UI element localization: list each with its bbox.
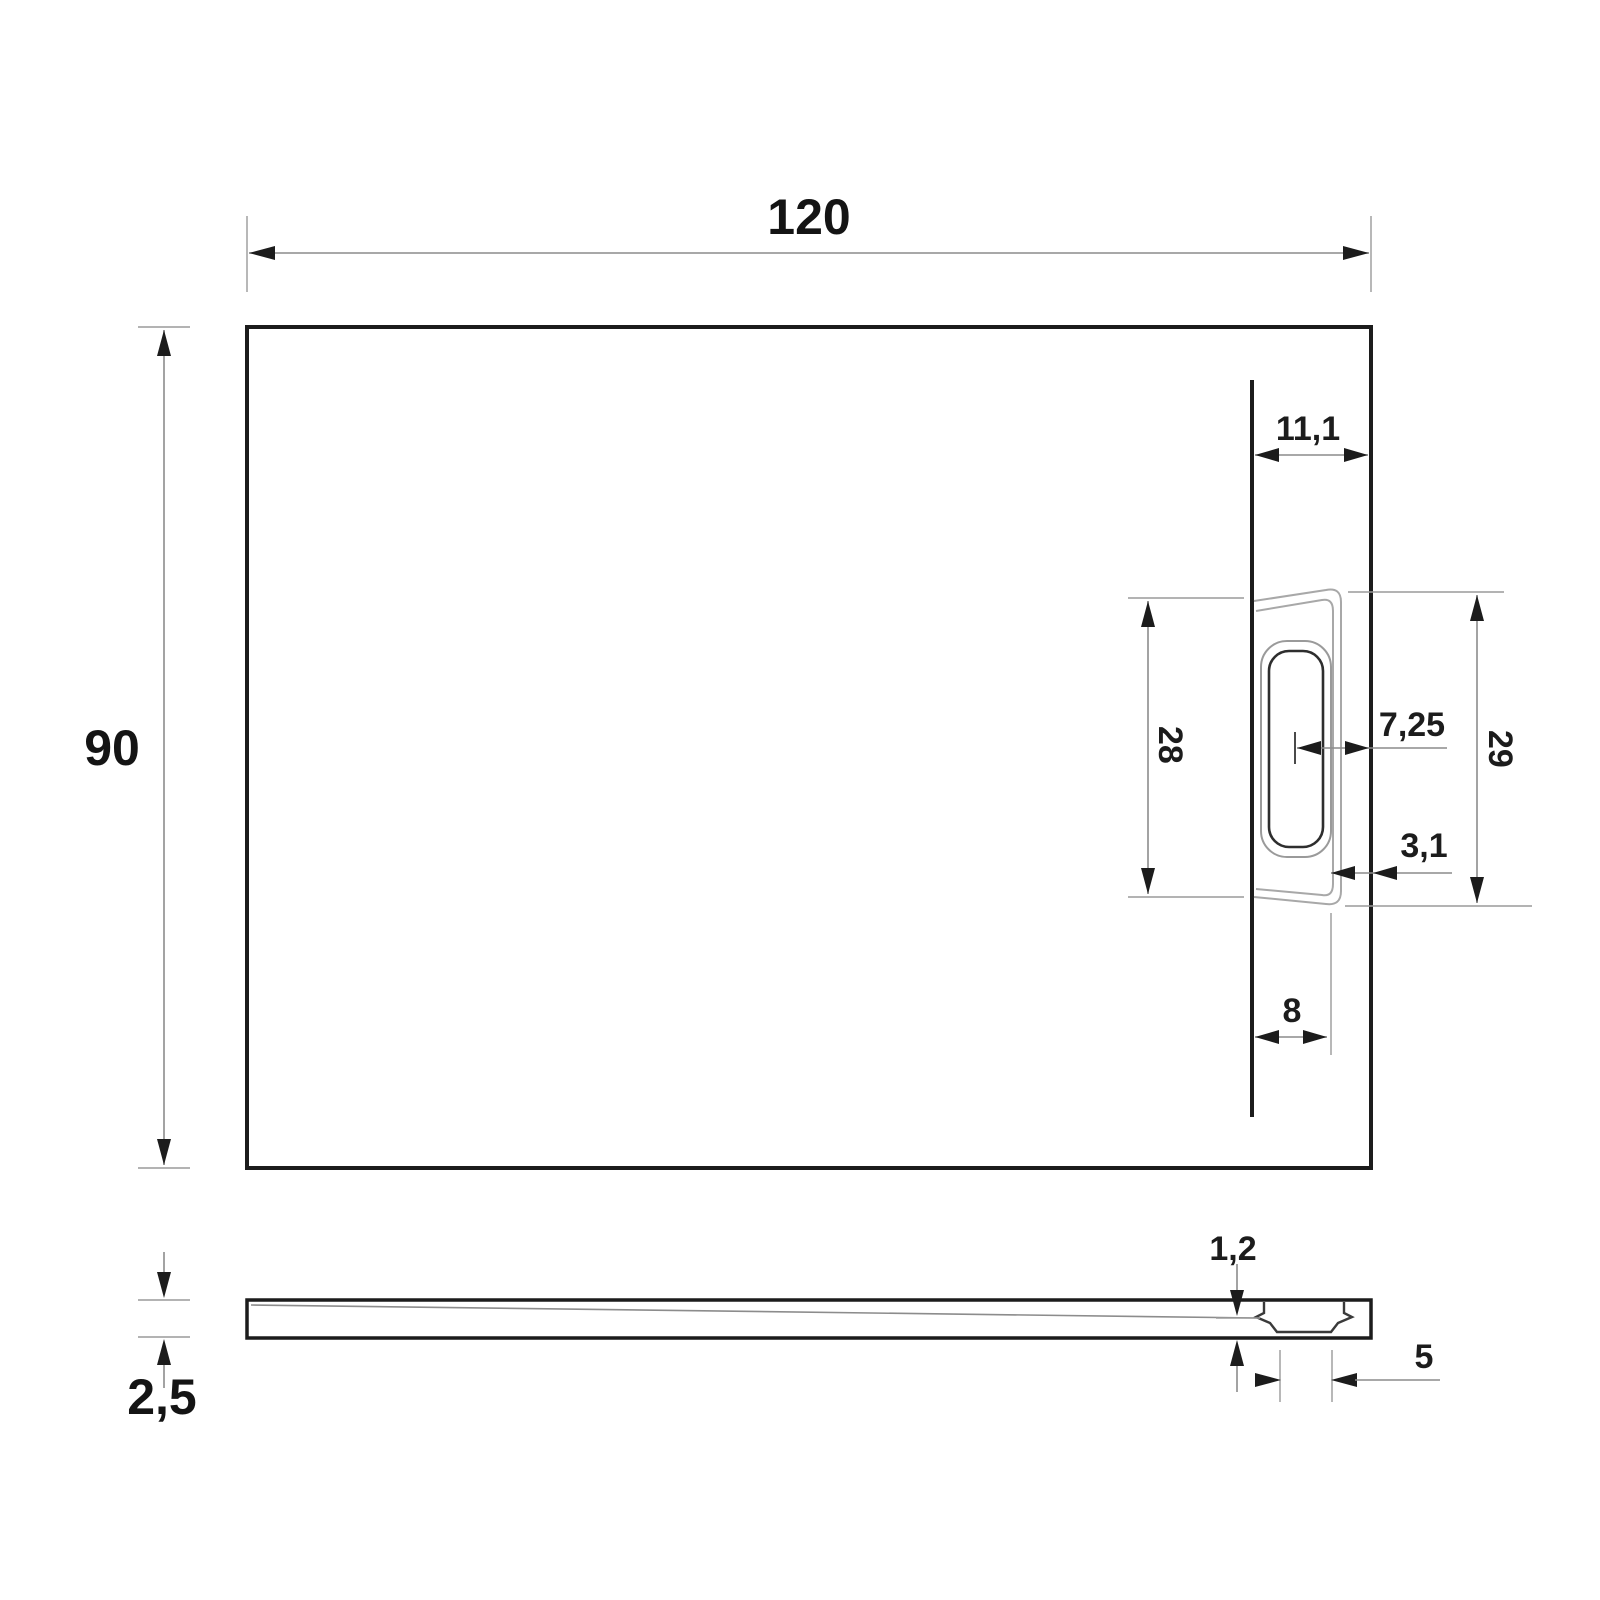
arrowhead-top <box>1470 595 1484 621</box>
arrowhead-left <box>1331 1373 1357 1387</box>
dim-overall-depth: 90 <box>84 327 190 1168</box>
dim-label-drain-center-to-edge: 7,25 <box>1379 706 1445 744</box>
arrowhead-bottom <box>157 1139 171 1165</box>
profile-view <box>247 1300 1371 1338</box>
dim-drain-to-edge: 11,1 <box>1255 410 1368 462</box>
drawing-canvas: 120 90 11,1 28 7,25 29 <box>0 0 1600 1600</box>
profile-floor-slope-line <box>251 1305 1258 1318</box>
arrowhead-left <box>1255 448 1279 462</box>
arrowhead-inner <box>1331 866 1355 880</box>
dim-label-cover-edge-gap: 3,1 <box>1400 827 1447 865</box>
plan-view <box>247 327 1371 1168</box>
dim-label-overall-depth: 90 <box>84 720 140 776</box>
arrowhead-outer <box>1373 866 1397 880</box>
dim-label-drain-to-edge: 11,1 <box>1276 410 1340 448</box>
dim-label-trap-width: 5 <box>1415 1338 1434 1376</box>
tray-profile-outline <box>247 1300 1371 1338</box>
arrowhead-left <box>1255 1030 1279 1044</box>
dim-label-edge-thickness: 2,5 <box>127 1369 197 1425</box>
dim-label-min-thickness: 1,2 <box>1209 1230 1256 1268</box>
arrowhead-right <box>1345 741 1369 755</box>
arrowhead-right <box>1255 1373 1281 1387</box>
dim-cover-edge-gap: 3,1 <box>1331 827 1452 880</box>
arrowhead-left <box>249 246 275 260</box>
arrowhead-down <box>157 1272 171 1298</box>
arrowhead-top <box>1141 601 1155 627</box>
shower-tray-technical-drawing: 120 90 11,1 28 7,25 29 <box>0 0 1600 1600</box>
dim-label-cutout-inner-height: 28 <box>1151 726 1189 764</box>
arrowhead-up <box>1230 1340 1244 1366</box>
arrowhead-up <box>157 1339 171 1365</box>
dim-drain-to-cover: 8 <box>1255 913 1331 1055</box>
arrowhead-right <box>1343 246 1369 260</box>
dim-overall-width: 120 <box>247 189 1371 292</box>
dim-label-overall-width: 120 <box>767 189 850 245</box>
dim-label-cutout-outer-height: 29 <box>1481 730 1519 768</box>
tray-plan-outline <box>247 327 1371 1168</box>
dim-label-drain-to-cover: 8 <box>1283 992 1302 1030</box>
drain-trap-profile <box>1256 1302 1352 1332</box>
dim-cutout-inner-height: 28 <box>1128 598 1244 897</box>
dim-edge-thickness: 2,5 <box>127 1252 197 1425</box>
dim-min-thickness: 1,2 <box>1209 1230 1260 1392</box>
arrowhead-bottom <box>1141 868 1155 894</box>
arrowhead-left <box>1297 741 1321 755</box>
arrowhead-top <box>157 330 171 356</box>
arrowhead-right <box>1303 1030 1327 1044</box>
dim-trap-width: 5 <box>1255 1338 1440 1402</box>
arrowhead-down <box>1230 1290 1244 1316</box>
arrowhead-bottom <box>1470 877 1484 903</box>
arrowhead-right <box>1344 448 1368 462</box>
